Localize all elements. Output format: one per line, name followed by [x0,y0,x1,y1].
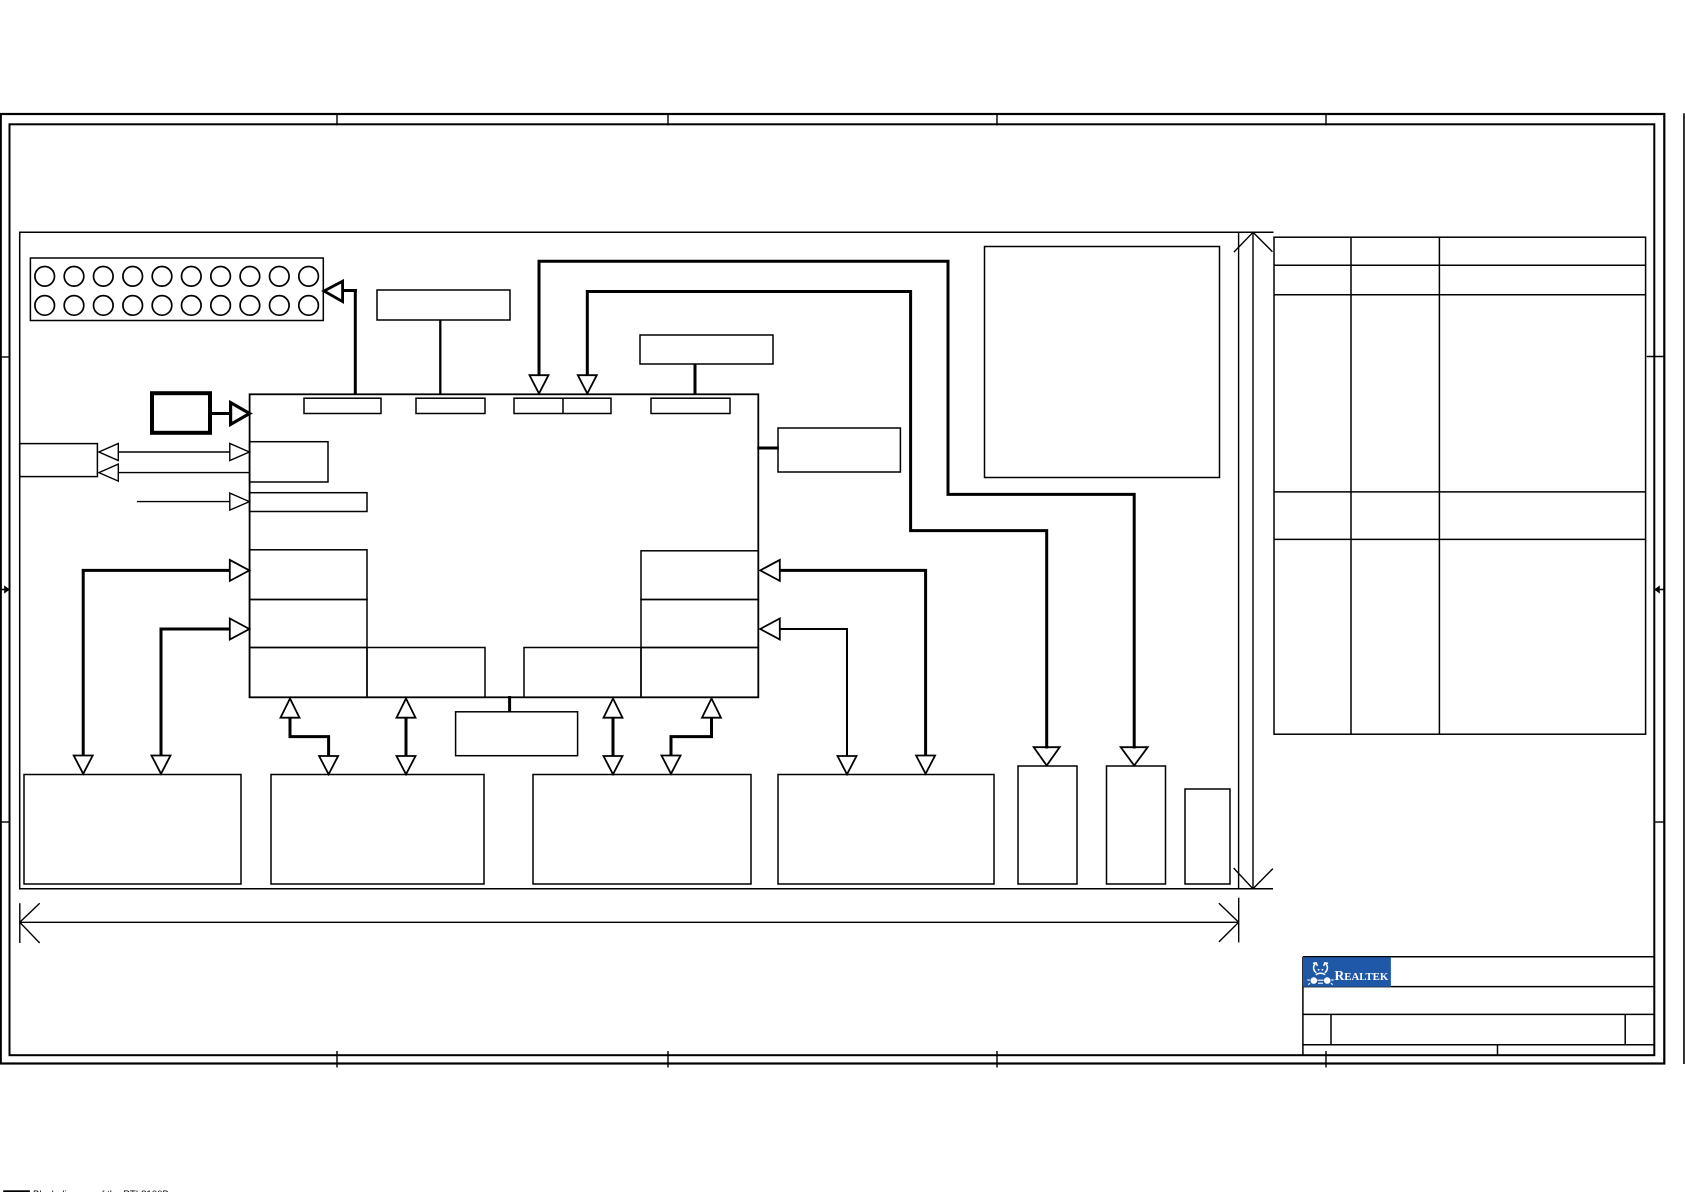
svg-text:REALTEK: REALTEK [1335,968,1389,983]
